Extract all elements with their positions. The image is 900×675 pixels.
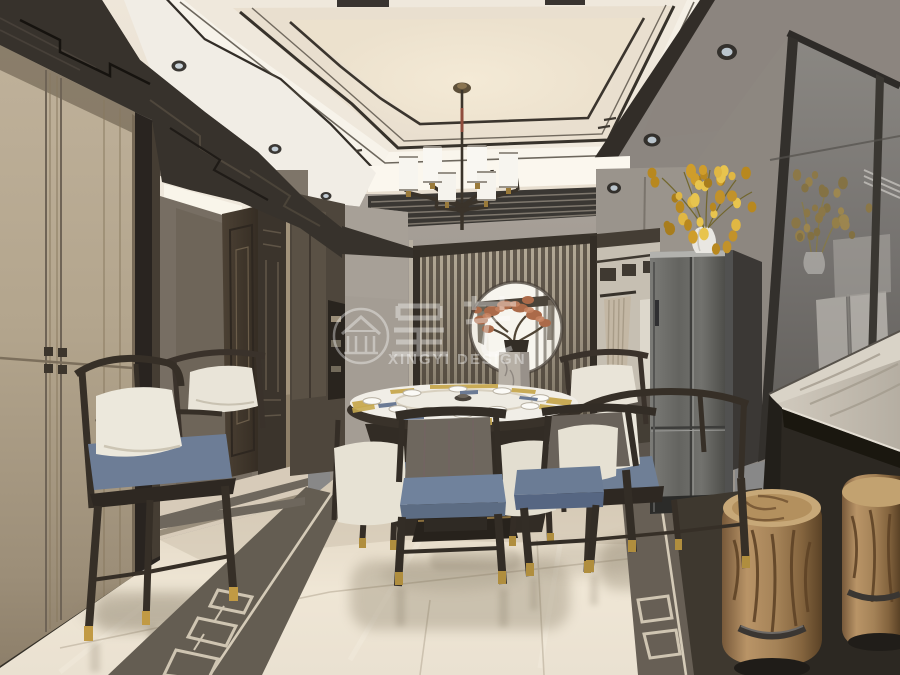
svg-text:XINGYI DESIGN: XINGYI DESIGN	[388, 351, 527, 368]
